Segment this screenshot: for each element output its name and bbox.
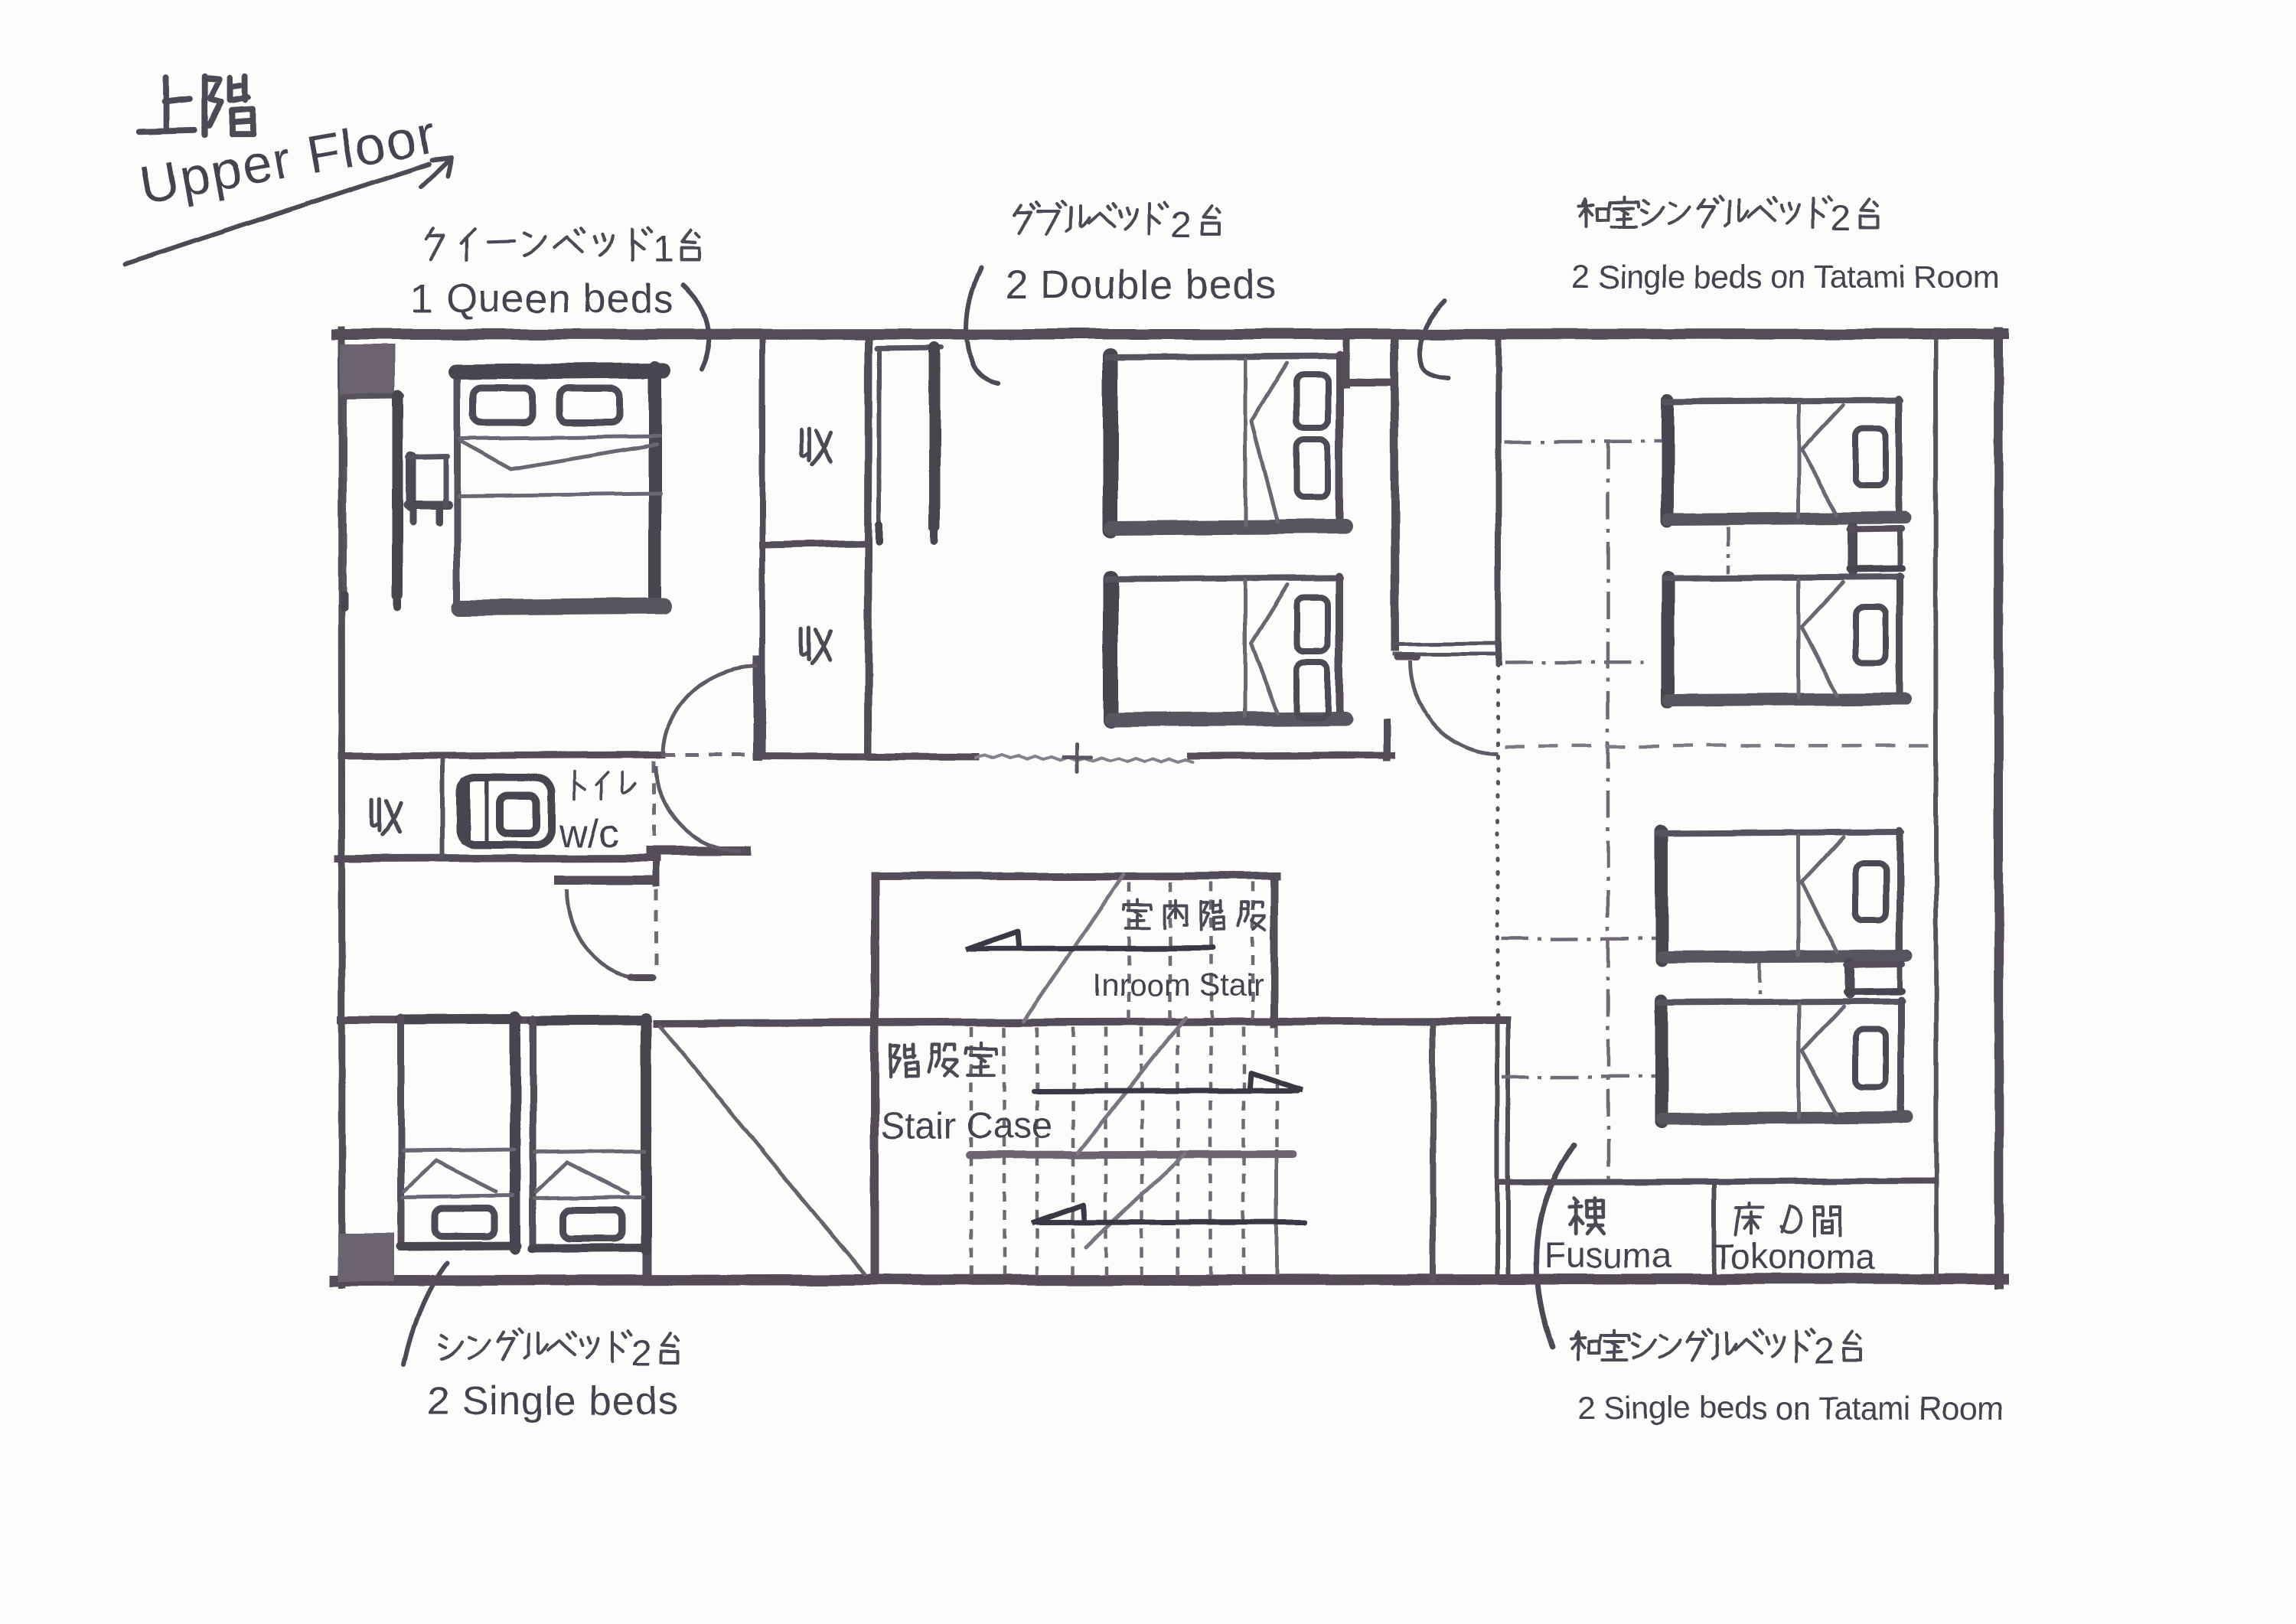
svg-text:1: 1 (652, 227, 673, 270)
svg-text:Fusuma: Fusuma (1544, 1235, 1672, 1275)
svg-text:2: 2 (1171, 205, 1192, 246)
svg-text:Stair Case: Stair Case (881, 1106, 1052, 1146)
svg-text:2 Single beds on Tatami Room: 2 Single beds on Tatami Room (1577, 1390, 2004, 1426)
svg-text:2: 2 (1831, 199, 1851, 240)
svg-text:w/c: w/c (559, 811, 619, 856)
svg-text:2 Single beds: 2 Single beds (427, 1379, 678, 1423)
svg-text:Tokonoma: Tokonoma (1713, 1237, 1876, 1277)
svg-text:2 Double beds: 2 Double beds (1005, 263, 1277, 308)
svg-text:1 Queen beds: 1 Queen beds (410, 276, 674, 321)
svg-text:2 Single beds on Tatami Room: 2 Single beds on Tatami Room (1572, 259, 1998, 295)
svg-text:Inroom Stair: Inroom Stair (1093, 967, 1264, 1003)
svg-text:2: 2 (631, 1333, 652, 1374)
svg-text:2: 2 (1813, 1332, 1834, 1372)
